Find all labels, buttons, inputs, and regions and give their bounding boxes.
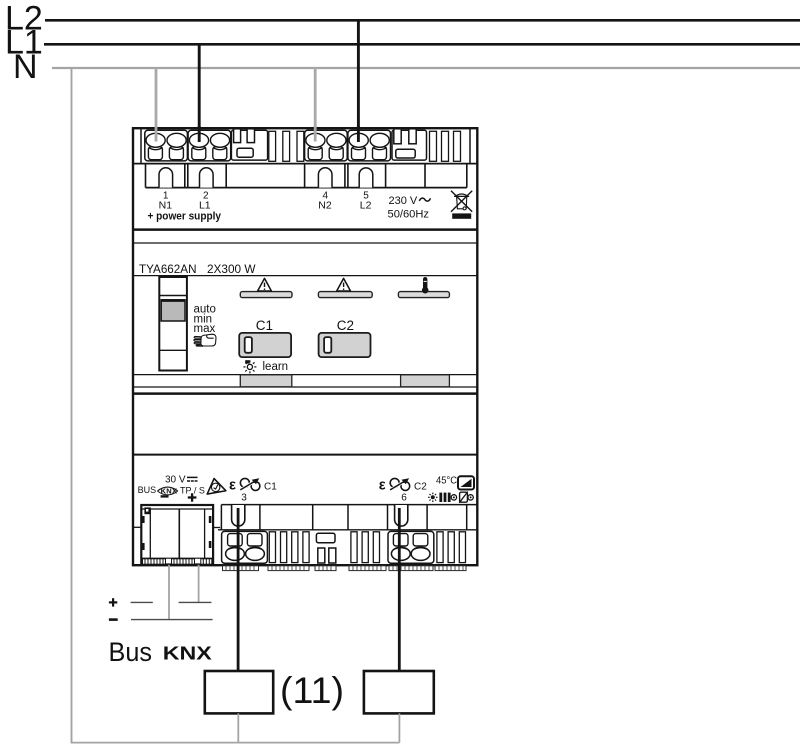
svg-text:learn: learn	[263, 361, 289, 373]
svg-text:C1: C1	[256, 318, 273, 333]
svg-text:N: N	[13, 48, 38, 86]
svg-text:30 V: 30 V	[165, 474, 186, 485]
svg-text:(11): (11)	[280, 670, 344, 711]
svg-text:N2: N2	[318, 199, 332, 211]
svg-text:2X300 W: 2X300 W	[207, 262, 256, 276]
svg-text:Bus: Bus	[109, 637, 153, 667]
svg-text:45°C: 45°C	[436, 475, 457, 487]
svg-text:230 V: 230 V	[389, 195, 418, 207]
svg-text:N1: N1	[159, 199, 173, 211]
svg-text:L2: L2	[360, 199, 372, 211]
svg-text:+ power supply: + power supply	[148, 211, 222, 223]
svg-text:ε: ε	[229, 477, 236, 493]
svg-text:ε: ε	[379, 477, 386, 493]
svg-text:BUS: BUS	[138, 485, 157, 495]
svg-text:TYA662AN: TYA662AN	[139, 262, 197, 276]
svg-text:C2: C2	[414, 481, 427, 492]
svg-text:L1: L1	[199, 199, 211, 211]
svg-text:50/60Hz: 50/60Hz	[388, 209, 430, 221]
svg-text:6: 6	[401, 493, 407, 504]
svg-text:C1: C1	[264, 481, 277, 492]
svg-text:C2: C2	[337, 318, 354, 333]
svg-text:3: 3	[241, 493, 247, 504]
svg-text:max: max	[194, 323, 216, 335]
svg-text:KNX: KNX	[163, 644, 212, 664]
